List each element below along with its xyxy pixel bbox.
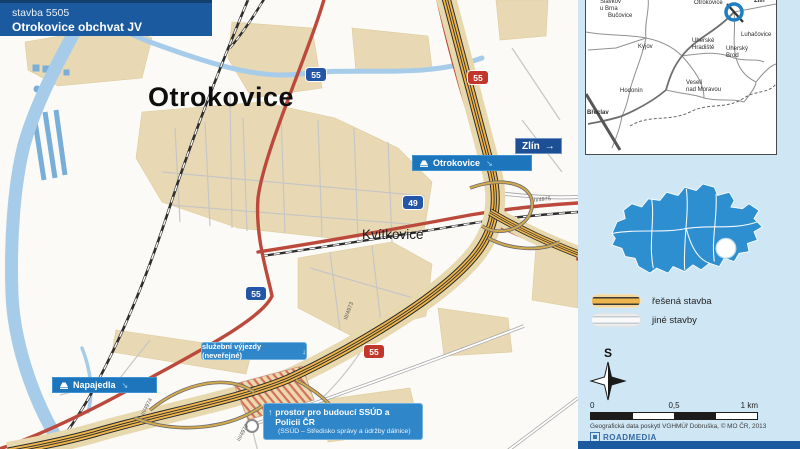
legend-label: řešená stavba — [652, 296, 712, 307]
station-flag-label: Otrokovice — [433, 158, 480, 168]
road-shield-55: 55 — [306, 68, 326, 81]
callout-ssud: ↑ prostor pro budoucí SSÚD a Policii ČR … — [264, 404, 422, 439]
inset-town: Slavkov u Brna — [600, 0, 621, 12]
callout-ssud-line1: prostor pro budoucí SSÚD a Policii ČR — [275, 407, 416, 427]
legend-label: jiné stavby — [652, 315, 697, 326]
regional-inset-map: Otrokovice Zlín Slavkov u Brna Bučovice … — [585, 0, 777, 155]
scale-tick: 1 km — [741, 401, 758, 410]
road-shield-49: 49 — [403, 196, 423, 209]
up-arrow-icon: ↑ — [268, 407, 272, 427]
compass-north-label: S — [602, 346, 614, 360]
callout-ssud-line2: (SSÚD – Středisko správy a údržby dálnic… — [268, 427, 416, 436]
data-attribution: Geografická data poskytl VGHMÚř Dobruška… — [590, 423, 795, 430]
inset-town: Hodonín — [620, 88, 643, 95]
scale-bar: 0 0,5 1 km — [590, 401, 758, 420]
station-flag-label: Napajedla — [73, 380, 116, 390]
inset-town: Luhačovice — [741, 32, 771, 39]
right-arrow-icon: → — [545, 141, 555, 152]
inset-town: Zlín — [754, 0, 765, 5]
inset-town: Veselí nad Moravou — [686, 80, 721, 93]
location-marker — [716, 238, 736, 258]
inset-town: Bučovice — [608, 13, 632, 20]
czech-republic-locator-map — [585, 179, 781, 283]
station-icon — [59, 380, 69, 390]
flag-pointer-icon: ↘ — [122, 381, 129, 390]
construction-name: Otrokovice obchvat JV — [12, 20, 212, 34]
inset-town: Břeclav — [587, 110, 609, 117]
construction-title-box: stavba 5505 Otrokovice obchvat JV — [0, 0, 212, 36]
map-document: stavba 5505 Otrokovice obchvat JV Otroko… — [0, 0, 800, 449]
district-label: Kvítkovice — [362, 227, 424, 242]
compass-rose-icon — [589, 360, 627, 402]
callout-service-text: služební výjezdy (neveřejné) — [202, 342, 298, 360]
legend-symbol-white — [592, 314, 640, 326]
construction-number: stavba 5505 — [12, 7, 212, 20]
scale-tick: 0,5 — [668, 401, 679, 410]
legend-item-resena-stavba: řešená stavba — [592, 295, 712, 307]
station-flag-napajedla: Napajedla ↘ — [52, 377, 157, 393]
callout-service-exits: služební výjezdy (neveřejné) ↓ — [202, 343, 306, 359]
road-shield-55-new: 55 — [468, 71, 488, 84]
station-icon — [419, 158, 429, 168]
inset-town: Uherské Hradiště — [692, 38, 714, 51]
down-arrow-icon: ↓ — [302, 347, 306, 356]
station-flag-otrokovice: Otrokovice ↘ — [412, 155, 532, 171]
direction-sign-label: Zlín — [522, 141, 540, 152]
scale-tick: 0 — [590, 401, 594, 410]
flag-pointer-icon: ↘ — [486, 159, 493, 168]
inset-town: Kyjov — [638, 44, 653, 51]
inset-town: Otrokovice — [694, 0, 723, 7]
panel-footer-bar — [578, 441, 800, 449]
city-label: Otrokovice — [148, 82, 294, 113]
legend-symbol-orange — [592, 295, 640, 307]
side-panel: Otrokovice Zlín Slavkov u Brna Bučovice … — [578, 0, 800, 449]
road-shield-55: 55 — [246, 287, 266, 300]
direction-sign-zlin: Zlín → — [515, 138, 562, 154]
legend-item-jine-stavby: jiné stavby — [592, 314, 697, 326]
scale-bar-segments — [590, 412, 758, 420]
inset-town: Uherský Brod — [726, 46, 748, 59]
road-shield-55-new: 55 — [364, 345, 384, 358]
inset-road-network — [586, 0, 776, 153]
